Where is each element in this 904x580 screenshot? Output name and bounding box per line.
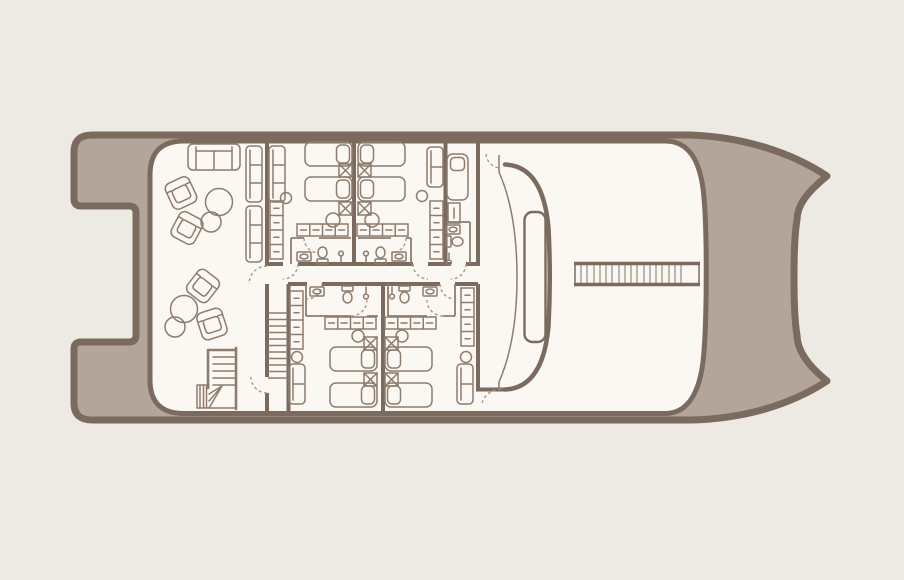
windshield-window-panel — [525, 212, 546, 342]
deck-plan-canvas — [0, 0, 904, 580]
interior-deckhouse — [150, 141, 706, 414]
